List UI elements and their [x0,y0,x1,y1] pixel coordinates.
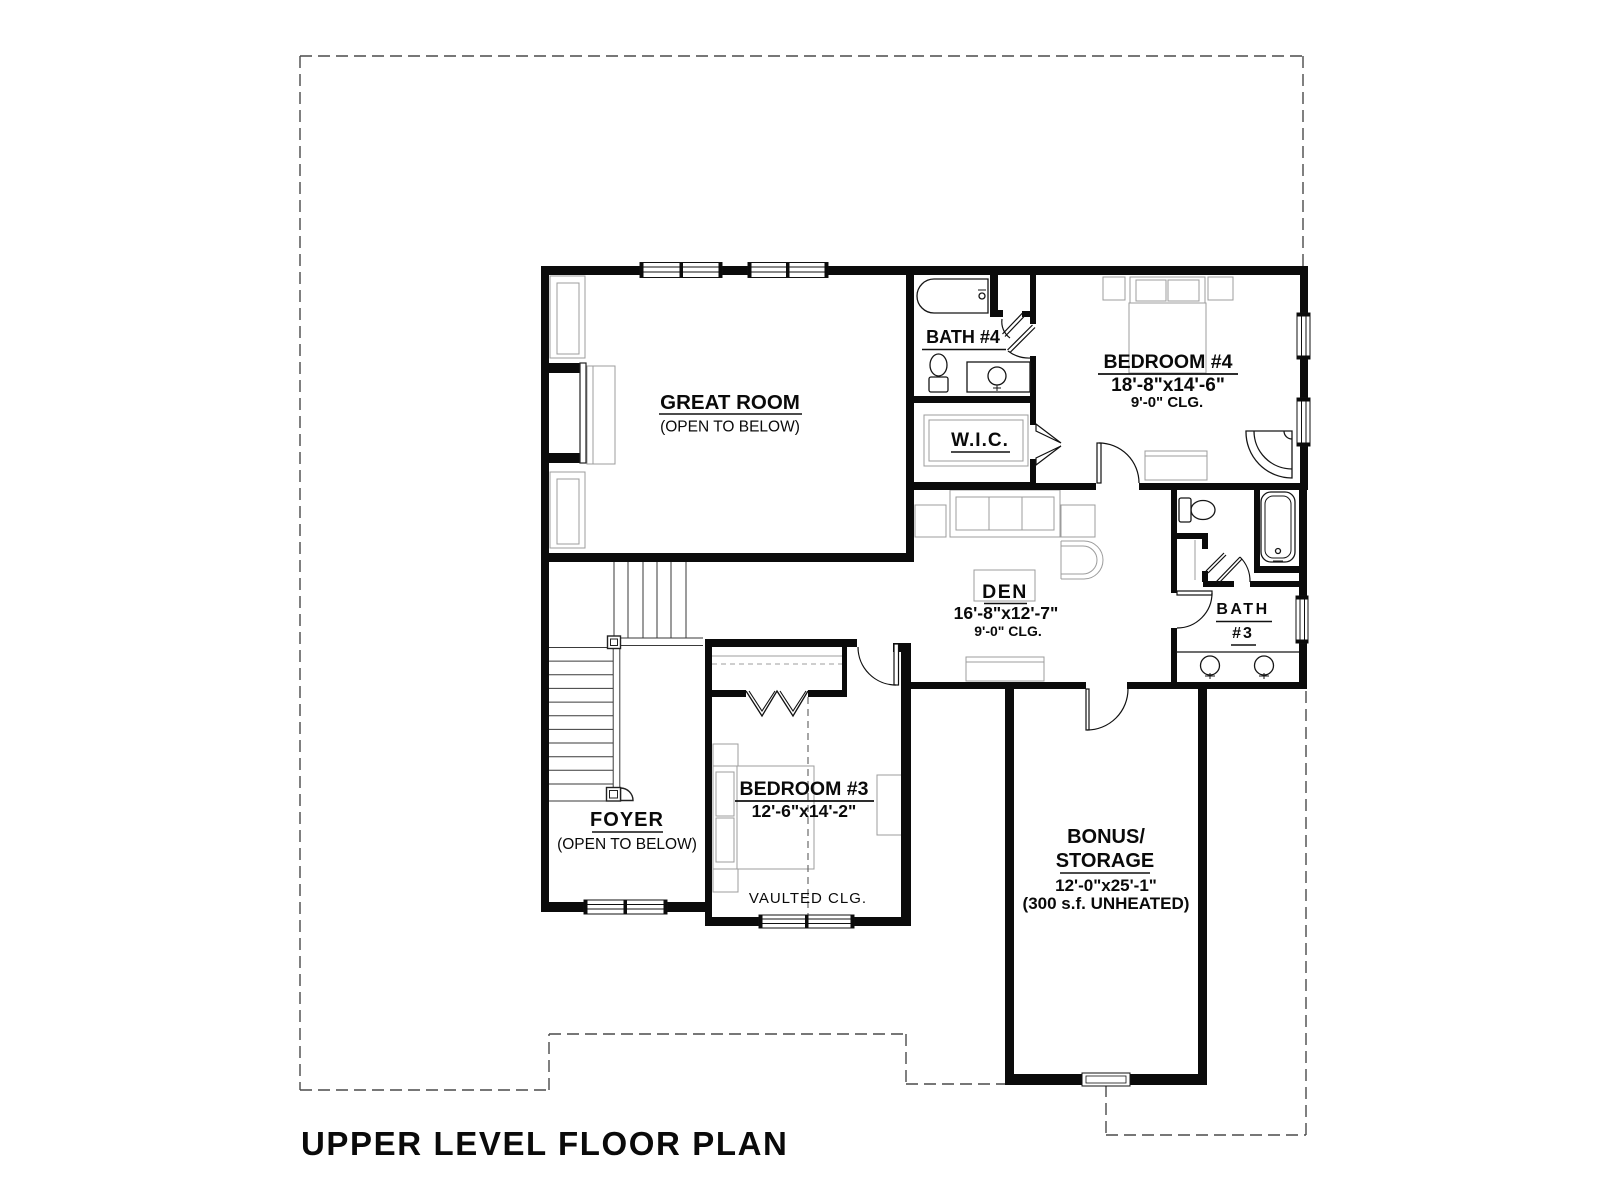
svg-text:9'-0" CLG.: 9'-0" CLG. [974,623,1042,639]
svg-text:BONUS/: BONUS/ [1067,826,1145,848]
svg-text:DEN: DEN [982,581,1028,603]
svg-text:GREAT ROOM: GREAT ROOM [660,391,800,414]
svg-text:BATH: BATH [1216,601,1269,618]
svg-text:16'-8"x12'-7": 16'-8"x12'-7" [954,603,1059,623]
svg-text:#3: #3 [1232,625,1254,642]
svg-text:18'-8"x14'-6": 18'-8"x14'-6" [1111,375,1225,396]
svg-text:9'-0" CLG.: 9'-0" CLG. [1131,394,1203,411]
svg-text:BATH #4: BATH #4 [926,327,1000,347]
svg-text:BEDROOM #4: BEDROOM #4 [1104,351,1233,373]
svg-text:12'-6"x14'-2": 12'-6"x14'-2" [752,801,857,821]
svg-text:VAULTED CLG.: VAULTED CLG. [749,890,867,907]
svg-text:STORAGE: STORAGE [1056,850,1155,872]
svg-text:BEDROOM #3: BEDROOM #3 [740,778,869,800]
svg-text:W.I.C.: W.I.C. [951,430,1009,451]
svg-text:(OPEN TO BELOW): (OPEN TO BELOW) [557,836,697,853]
svg-text:(OPEN TO BELOW): (OPEN TO BELOW) [660,419,800,436]
svg-text:12'-0"x25'-1": 12'-0"x25'-1" [1055,876,1157,895]
svg-text:UPPER LEVEL FLOOR PLAN: UPPER LEVEL FLOOR PLAN [301,1125,788,1162]
svg-text:(300 s.f. UNHEATED): (300 s.f. UNHEATED) [1023,894,1190,913]
svg-text:FOYER: FOYER [590,809,664,831]
